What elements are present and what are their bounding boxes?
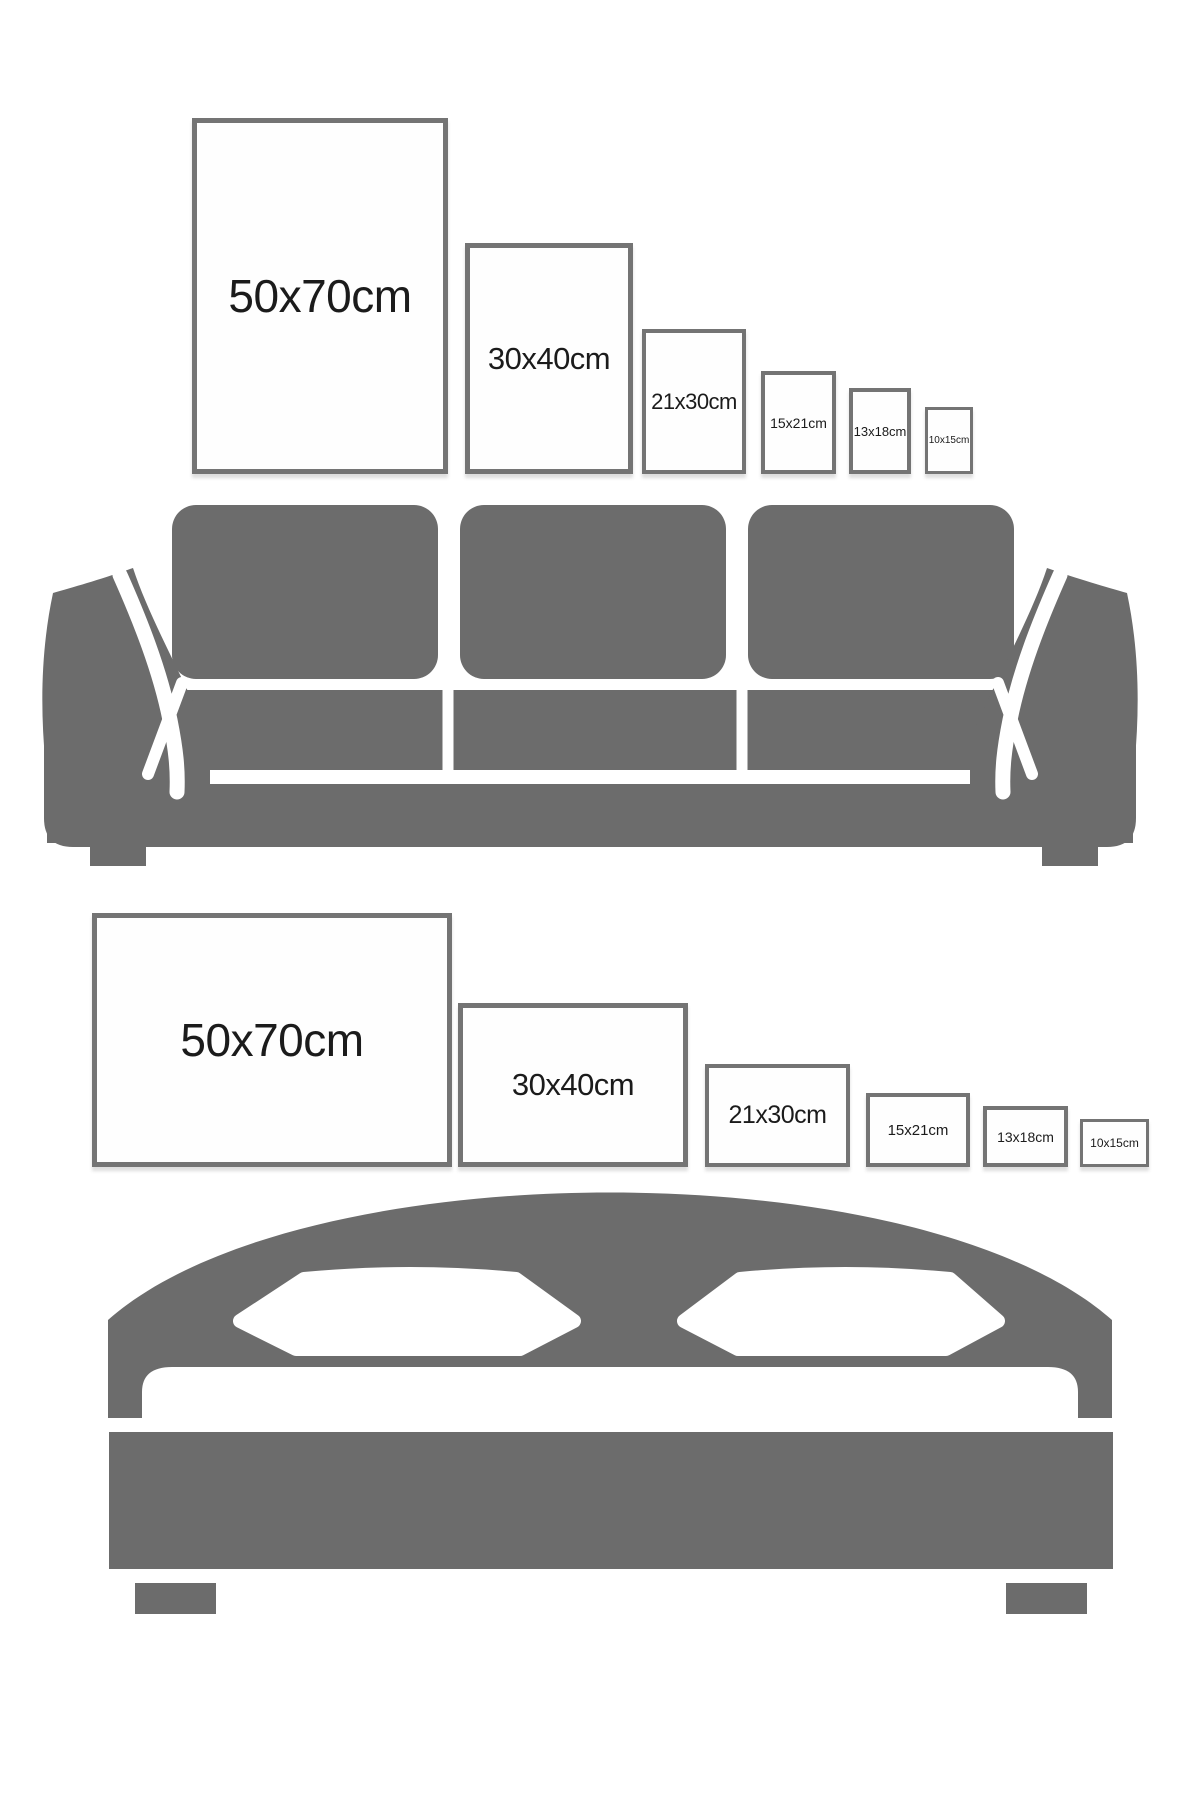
frame-50x70-landscape: 50x70cm — [92, 913, 452, 1167]
frame-size-label: 13x18cm — [854, 424, 907, 439]
frame-size-label: 21x30cm — [651, 389, 737, 415]
frame-size-label: 13x18cm — [997, 1129, 1054, 1145]
frame-size-label: 15x21cm — [770, 415, 827, 431]
sofa-back-cushion-middle — [460, 505, 726, 679]
frame-13x18-landscape: 13x18cm — [983, 1106, 1068, 1167]
bed-foot-right — [1006, 1583, 1087, 1614]
frame-size-label: 50x70cm — [228, 269, 411, 323]
frame-size-label: 15x21cm — [888, 1122, 949, 1139]
frame-15x21-landscape: 15x21cm — [866, 1093, 970, 1167]
frame-size-label: 21x30cm — [729, 1101, 827, 1130]
sofa-back-cushion-left — [172, 505, 438, 679]
sofa-seat-middle — [454, 692, 736, 770]
bed-base — [109, 1432, 1113, 1569]
frame-21x30-landscape: 21x30cm — [705, 1064, 850, 1167]
frame-size-label: 50x70cm — [180, 1013, 363, 1067]
frame-size-label: 30x40cm — [512, 1067, 634, 1103]
bed-foot-left — [135, 1583, 216, 1614]
frame-50x70-portrait: 50x70cm — [192, 118, 448, 474]
sofa-illustration — [0, 440, 1200, 880]
frame-size-label: 10x15cm — [1090, 1136, 1139, 1150]
size-guide-page: 50x70cm 30x40cm 21x30cm 15x21cm 13x18cm … — [0, 0, 1200, 1800]
sofa-back-cushion-right — [748, 505, 1014, 679]
frame-size-label: 30x40cm — [488, 341, 610, 377]
bed-pillow-right — [684, 1274, 998, 1349]
frame-30x40-landscape: 30x40cm — [458, 1003, 688, 1167]
bed-pillow-left — [240, 1274, 574, 1349]
bed-illustration — [0, 1180, 1200, 1640]
frame-10x15-landscape: 10x15cm — [1080, 1119, 1149, 1167]
